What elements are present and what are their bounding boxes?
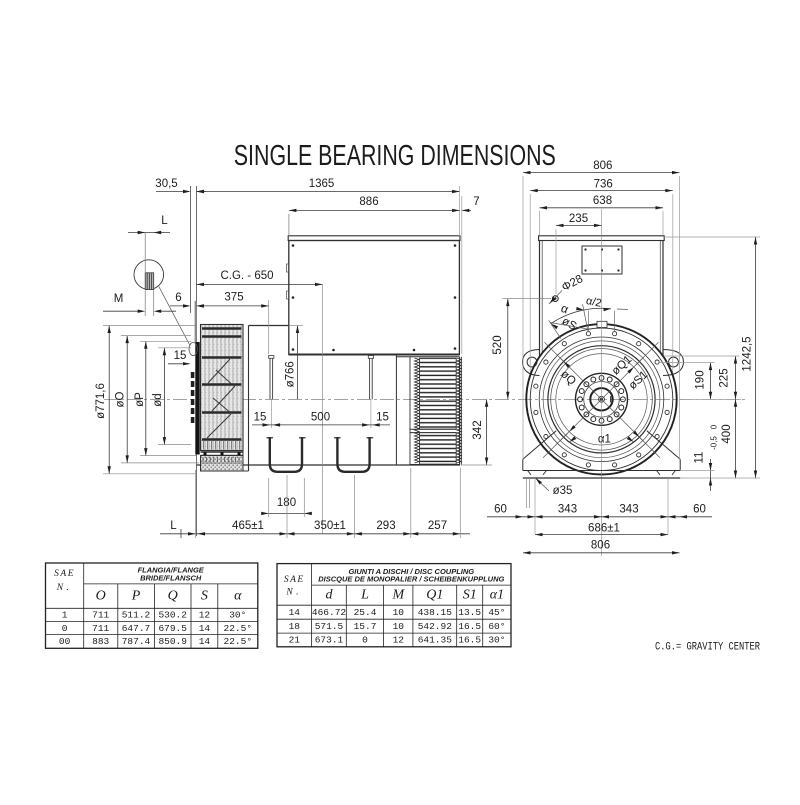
svg-text:BRIDE/FLANSCH: BRIDE/FLANSCH: [140, 573, 202, 582]
svg-text:7: 7: [473, 196, 479, 208]
svg-text:L: L: [360, 588, 369, 603]
svg-text:190: 190: [695, 370, 707, 389]
svg-text:711: 711: [92, 610, 109, 621]
svg-text:α: α: [234, 589, 242, 604]
svg-text:DISCQUE DE MONOPALIER / SCHEIB: DISCQUE DE MONOPALIER / SCHEIBENKUPPLUNG: [318, 575, 504, 584]
svg-text:21: 21: [289, 635, 301, 646]
svg-text:S: S: [201, 589, 208, 604]
svg-text:14: 14: [289, 607, 301, 618]
svg-text:SINGLE BEARING DIMENSIONS: SINGLE BEARING DIMENSIONS: [234, 140, 556, 172]
svg-text:22.5°: 22.5°: [224, 636, 253, 647]
svg-text:679.5: 679.5: [158, 623, 187, 634]
svg-text:465±1: 465±1: [232, 520, 264, 532]
svg-text:15: 15: [174, 350, 187, 362]
svg-text:L: L: [170, 520, 177, 532]
svg-text:400: 400: [721, 424, 733, 443]
svg-text:11: 11: [694, 452, 706, 464]
svg-text:6: 6: [175, 292, 181, 304]
svg-text:SAE: SAE: [284, 575, 305, 585]
svg-text:647.7: 647.7: [122, 623, 151, 634]
svg-text:C.G. - 650: C.G. - 650: [220, 270, 273, 282]
svg-text:øP: øP: [134, 392, 146, 407]
svg-text:0: 0: [710, 424, 719, 429]
svg-text:686±1: 686±1: [588, 523, 620, 535]
svg-text:638: 638: [593, 195, 612, 207]
svg-text:511.2: 511.2: [122, 610, 151, 621]
svg-text:520: 520: [492, 335, 504, 354]
svg-text:12: 12: [199, 610, 211, 621]
svg-text:343: 343: [558, 504, 577, 516]
svg-text:15.7: 15.7: [354, 621, 377, 632]
svg-text:d: d: [326, 588, 334, 603]
svg-text:375: 375: [224, 292, 243, 304]
svg-text:30,5: 30,5: [155, 178, 177, 190]
svg-text:16.5: 16.5: [458, 635, 481, 646]
svg-text:883: 883: [92, 636, 109, 647]
svg-text:711: 711: [92, 623, 109, 634]
svg-text:60°: 60°: [488, 621, 505, 632]
svg-text:342: 342: [472, 420, 484, 439]
svg-text:-0,5: -0,5: [710, 436, 719, 450]
svg-text:00: 00: [59, 636, 71, 647]
svg-text:30°: 30°: [229, 610, 246, 621]
svg-text:14: 14: [199, 636, 211, 647]
svg-text:542.92: 542.92: [418, 621, 453, 632]
svg-text:571.5: 571.5: [315, 621, 344, 632]
svg-text:ø35: ø35: [553, 485, 573, 497]
svg-text:M: M: [391, 588, 405, 603]
svg-text:15: 15: [254, 412, 267, 424]
svg-text:257: 257: [428, 520, 447, 532]
svg-text:22.5°: 22.5°: [224, 623, 253, 634]
svg-text:225: 225: [719, 368, 731, 387]
svg-text:1242,5: 1242,5: [742, 336, 754, 371]
svg-text:ø766: ø766: [284, 361, 296, 387]
svg-text:736: 736: [594, 179, 613, 191]
svg-text:L: L: [161, 215, 168, 227]
svg-text:M: M: [114, 293, 124, 305]
svg-text:N .: N .: [285, 588, 299, 598]
svg-text:25.4: 25.4: [354, 607, 377, 618]
svg-text:673.1: 673.1: [315, 635, 344, 646]
svg-text:1365: 1365: [309, 178, 335, 190]
svg-text:α1: α1: [598, 434, 611, 446]
svg-text:530.2: 530.2: [158, 610, 187, 621]
svg-text:18: 18: [289, 621, 301, 632]
svg-text:α1: α1: [490, 588, 504, 603]
svg-text:15: 15: [376, 412, 389, 424]
svg-text:438.15: 438.15: [418, 607, 453, 618]
svg-text:ød: ød: [152, 393, 164, 406]
svg-text:SAE: SAE: [54, 569, 75, 579]
svg-text:16.5: 16.5: [458, 621, 481, 632]
svg-text:Q1: Q1: [426, 588, 443, 603]
svg-text:60: 60: [494, 504, 507, 516]
svg-text:850.9: 850.9: [158, 636, 187, 647]
svg-text:1: 1: [62, 610, 68, 621]
svg-text:466.72: 466.72: [312, 607, 347, 618]
svg-text:Q: Q: [168, 589, 178, 604]
svg-text:0: 0: [362, 635, 368, 646]
svg-text:60: 60: [693, 504, 706, 516]
svg-text:S1: S1: [463, 588, 477, 603]
svg-text:10: 10: [393, 607, 405, 618]
svg-text:641.35: 641.35: [418, 635, 453, 646]
svg-text:12: 12: [393, 635, 405, 646]
svg-text:293: 293: [376, 520, 395, 532]
svg-text:N .: N .: [56, 583, 70, 593]
svg-text:235: 235: [569, 213, 588, 225]
svg-text:C.G.= GRAVITY CENTER: C.G.= GRAVITY CENTER: [655, 641, 760, 653]
svg-text:14: 14: [199, 623, 211, 634]
svg-text:806: 806: [591, 540, 610, 552]
svg-text:180: 180: [277, 497, 296, 509]
svg-text:13.5: 13.5: [458, 607, 481, 618]
svg-text:0: 0: [62, 623, 68, 634]
svg-text:øO: øO: [114, 391, 126, 407]
svg-text:O: O: [96, 589, 106, 604]
svg-text:30°: 30°: [488, 635, 505, 646]
svg-text:500: 500: [311, 412, 330, 424]
svg-text:45°: 45°: [488, 607, 505, 618]
svg-text:ø771,6: ø771,6: [95, 383, 107, 419]
svg-text:10: 10: [393, 621, 405, 632]
svg-text:806: 806: [593, 160, 612, 172]
svg-text:787.4: 787.4: [122, 636, 151, 647]
svg-text:P: P: [131, 589, 141, 604]
svg-text:350±1: 350±1: [314, 520, 346, 532]
svg-text:886: 886: [359, 196, 378, 208]
svg-text:343: 343: [619, 504, 638, 516]
